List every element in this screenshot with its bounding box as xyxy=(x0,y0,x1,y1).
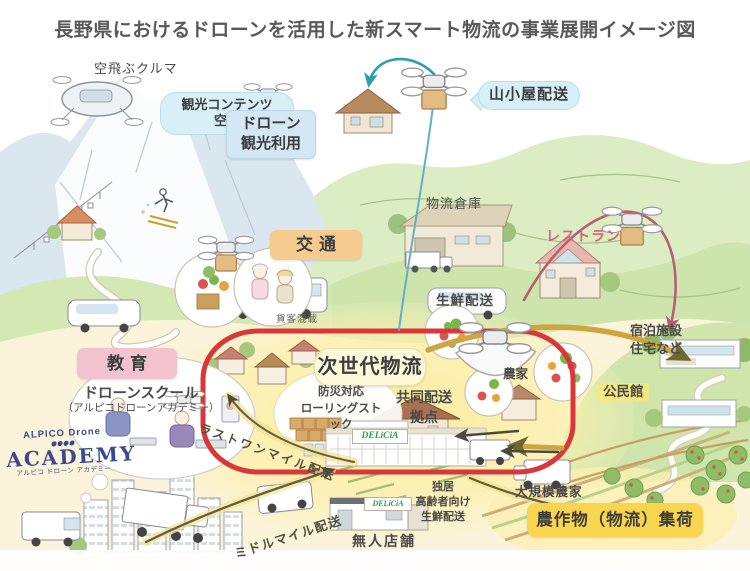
label-restaurant: レストラン xyxy=(546,228,621,246)
delicia-store-sign: DELiCiA xyxy=(364,497,412,511)
label-drone-school-subtitle: （アルピコドローンアカデミー） xyxy=(60,402,222,415)
box-drone-tourism: ドローン 観光利用 xyxy=(226,110,316,159)
box-next-gen-logistics: 次世代物流 xyxy=(314,348,426,386)
label-flying-car: 空飛ぶクルマ xyxy=(94,61,178,77)
label-farmer: 農家 xyxy=(503,367,528,383)
label-community-center: 公民館 xyxy=(598,383,649,402)
label-freight-passenger-mix: 貨客混載 xyxy=(276,314,318,326)
alpico-academy-logo: ALPICO Drone ACADEMY アルピコ ドローン アカデミー xyxy=(5,425,121,479)
page-title: 長野県におけるドローンを活用した新スマート物流の事業展開イメージ図 xyxy=(0,19,750,43)
label-fresh-delivery: 生鮮配送 xyxy=(436,293,494,310)
label-unmanned-store: 無人店舗 xyxy=(352,533,416,551)
delicia-main-sign: DELiCiA xyxy=(352,429,408,444)
label-large-scale-farmer: 大規模農家 xyxy=(515,485,583,501)
box-transport: 交通 xyxy=(270,230,362,260)
label-disaster-rolling-stock: 防災対応 ローリングストック xyxy=(298,384,384,434)
arrow-farm-in xyxy=(512,446,562,448)
illustration-layer xyxy=(0,0,750,571)
label-drone-school: ドローンスクール xyxy=(76,385,206,403)
label-accommodation: 宿泊施設 住宅など xyxy=(616,322,696,358)
label-elderly-fresh-delivery: 独居 高齢者向け 生鮮配送 xyxy=(407,480,479,525)
label-joint-delivery-base: 共同配送 拠点 xyxy=(388,388,460,427)
box-education: 教育 xyxy=(77,348,177,379)
label-logistics-warehouse: 物流倉庫 xyxy=(426,196,482,212)
bubble-mountain-hut-delivery: 山小屋配送 xyxy=(478,81,580,110)
arrow-dark-2 xyxy=(504,451,558,452)
bottom-fade xyxy=(0,550,750,571)
infographic-canvas: 長野県におけるドローンを活用した新スマート物流の事業展開イメージ図 空飛ぶクルマ… xyxy=(0,0,750,571)
box-crop-collection: 農作物（物流）集荷 xyxy=(527,503,703,537)
